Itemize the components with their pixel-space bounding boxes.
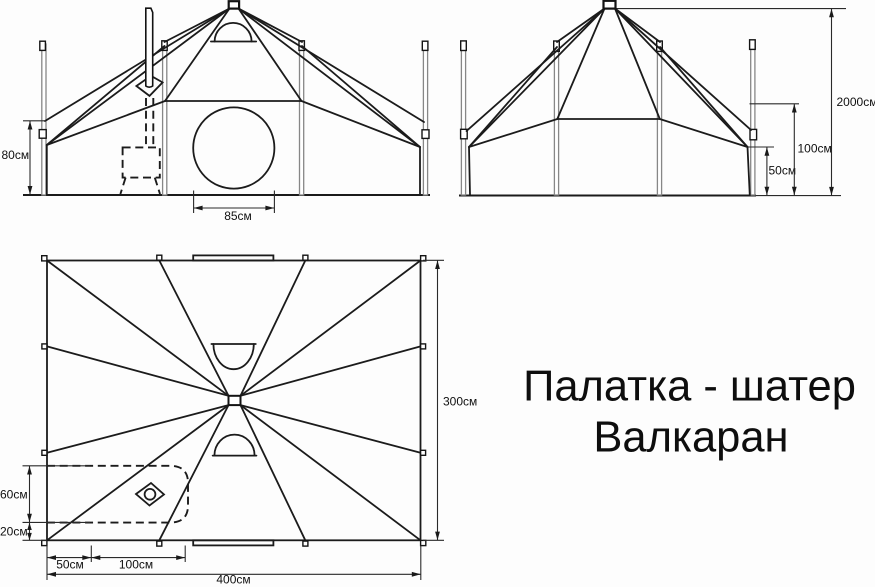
svg-text:50см: 50см bbox=[56, 558, 84, 572]
svg-text:85см: 85см bbox=[224, 209, 252, 223]
svg-text:Валкаран: Валкаран bbox=[593, 413, 788, 461]
svg-text:400см: 400см bbox=[216, 573, 250, 587]
svg-text:100см: 100см bbox=[119, 558, 153, 572]
svg-text:Палатка - шатер: Палатка - шатер bbox=[523, 363, 856, 411]
svg-text:2000см: 2000см bbox=[837, 95, 875, 109]
svg-text:50см: 50см bbox=[769, 163, 797, 177]
svg-text:300см: 300см bbox=[443, 395, 477, 409]
svg-text:20см: 20см bbox=[0, 524, 28, 538]
svg-text:100см: 100см bbox=[798, 142, 832, 156]
svg-text:60см: 60см bbox=[0, 488, 28, 502]
svg-text:80см: 80см bbox=[2, 148, 30, 162]
